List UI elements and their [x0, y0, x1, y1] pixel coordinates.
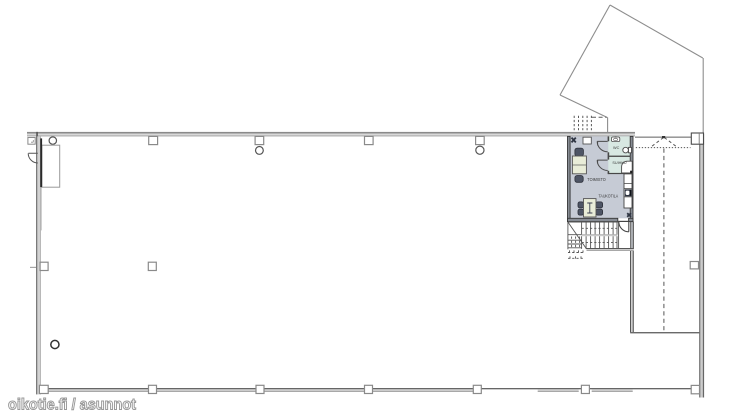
svg-text:TAUKOTILA: TAUKOTILA [599, 193, 619, 198]
svg-text:TOIMISTO: TOIMISTO [587, 177, 606, 182]
svg-text:SUIHKU: SUIHKU [612, 161, 626, 165]
svg-text:WC: WC [613, 146, 620, 150]
svg-text:oikotie.fi / asunnot: oikotie.fi / asunnot [8, 396, 137, 413]
